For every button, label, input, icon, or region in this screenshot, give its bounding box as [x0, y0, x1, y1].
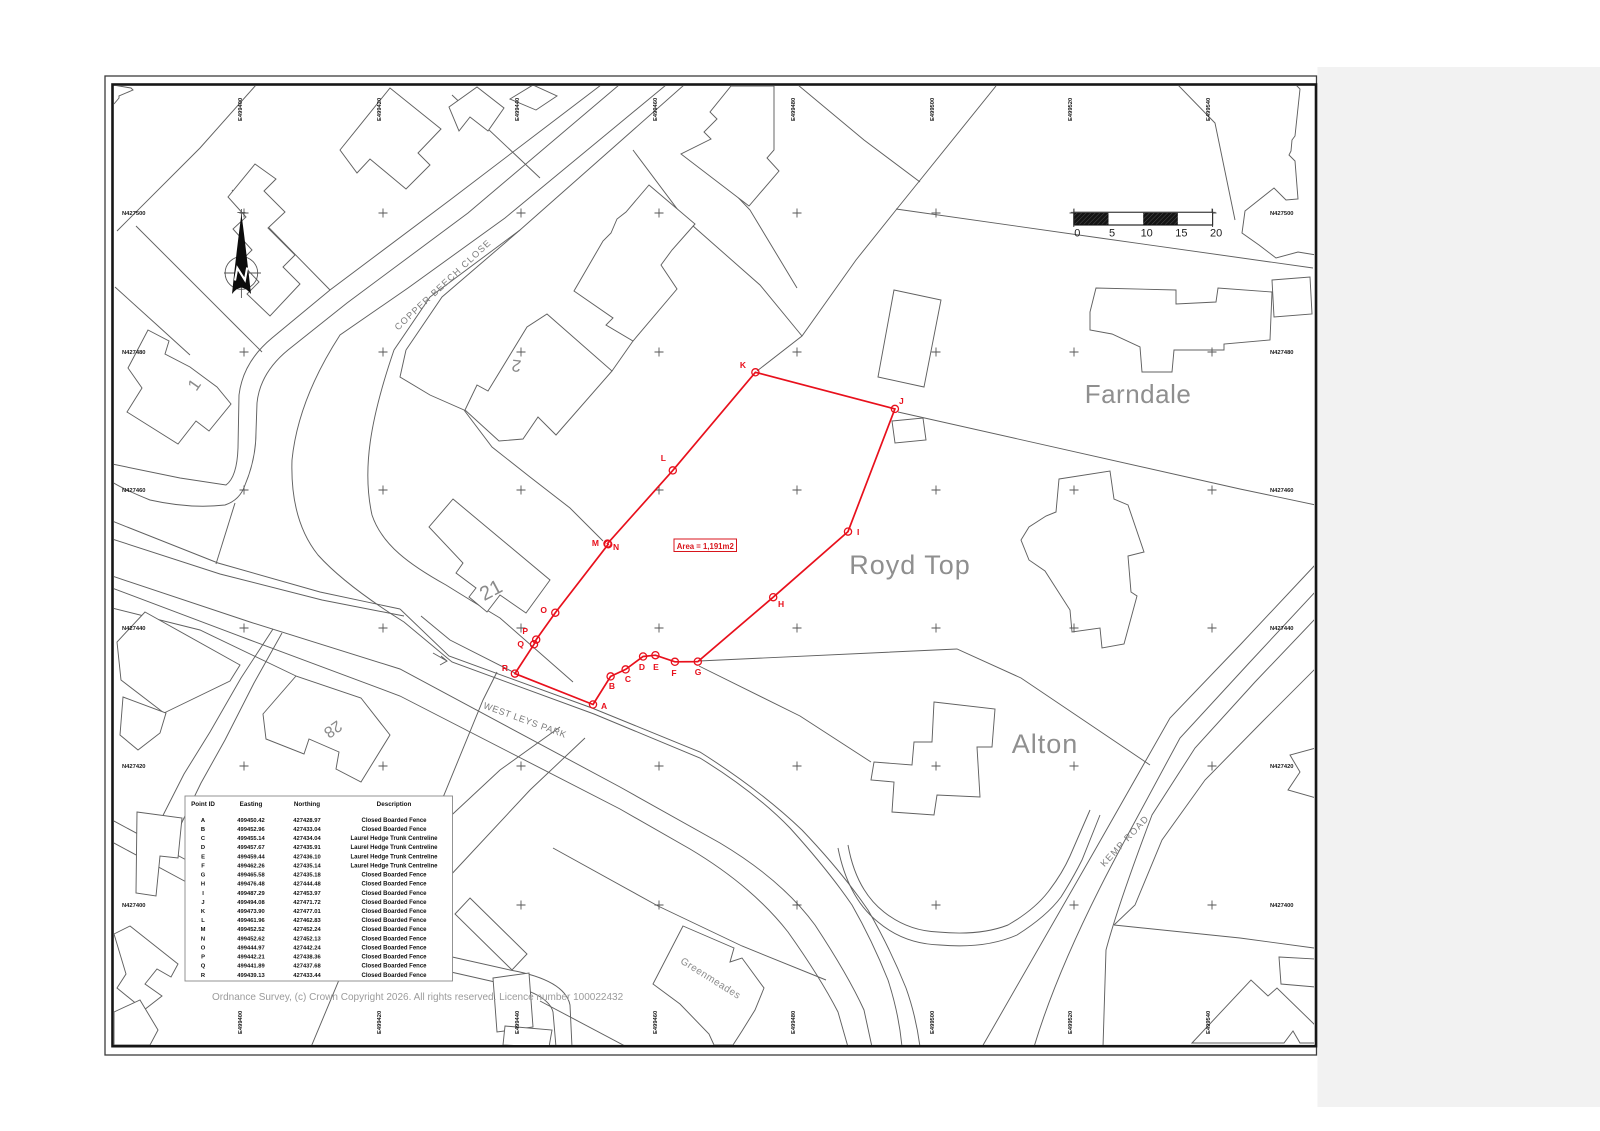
svg-text:A: A [601, 701, 607, 711]
svg-text:E499400: E499400 [238, 98, 244, 121]
svg-text:427433.44: 427433.44 [293, 973, 321, 979]
svg-text:N: N [613, 542, 619, 552]
svg-text:0: 0 [1074, 228, 1080, 240]
svg-text:Royd Top: Royd Top [849, 550, 971, 580]
svg-text:B: B [609, 681, 615, 691]
svg-text:Closed Boarded Fence: Closed Boarded Fence [361, 918, 427, 924]
svg-text:E499480: E499480 [791, 1011, 797, 1034]
svg-text:427428.97: 427428.97 [293, 818, 320, 824]
svg-text:E499520: E499520 [1068, 98, 1074, 121]
svg-text:J: J [899, 396, 904, 406]
svg-text:499459.44: 499459.44 [237, 854, 265, 860]
svg-text:499494.08: 499494.08 [237, 900, 265, 906]
svg-text:499457.67: 499457.67 [237, 845, 264, 851]
svg-text:499473.90: 499473.90 [237, 909, 264, 915]
svg-text:B: B [201, 827, 205, 833]
svg-text:E: E [653, 662, 659, 672]
svg-text:499452.52: 499452.52 [237, 927, 264, 933]
svg-text:E499440: E499440 [515, 1011, 521, 1034]
svg-text:E499520: E499520 [1068, 1011, 1074, 1034]
svg-text:427437.68: 427437.68 [293, 964, 321, 970]
svg-text:499442.21: 499442.21 [237, 955, 265, 961]
svg-text:I: I [857, 527, 859, 537]
svg-text:427453.97: 427453.97 [293, 891, 320, 897]
svg-text:499439.13: 499439.13 [237, 973, 265, 979]
svg-text:E499420: E499420 [377, 98, 383, 121]
svg-text:499487.29: 499487.29 [237, 891, 265, 897]
svg-text:499476.48: 499476.48 [237, 882, 265, 888]
svg-text:Laurel Hedge Trunk Centreline: Laurel Hedge Trunk Centreline [350, 845, 438, 851]
svg-text:D: D [639, 662, 645, 672]
svg-text:427434.04: 427434.04 [293, 836, 321, 842]
svg-text:427435.91: 427435.91 [293, 845, 321, 851]
svg-text:D: D [201, 845, 205, 851]
svg-text:M: M [201, 927, 206, 933]
svg-text:5: 5 [1109, 228, 1115, 240]
svg-text:P: P [201, 955, 205, 961]
svg-text:Area = 1,191m2: Area = 1,191m2 [677, 542, 735, 551]
svg-text:N: N [201, 936, 205, 942]
svg-text:Ordnance Survey, (c) Crown Cop: Ordnance Survey, (c) Crown Copyright 202… [212, 992, 624, 1003]
svg-text:Closed Boarded Fence: Closed Boarded Fence [361, 909, 427, 915]
svg-text:E499500: E499500 [930, 98, 936, 121]
svg-text:427462.83: 427462.83 [293, 918, 321, 924]
svg-text:Closed Boarded Fence: Closed Boarded Fence [361, 955, 427, 961]
svg-text:Closed Boarded Fence: Closed Boarded Fence [361, 891, 427, 897]
svg-text:499462.26: 499462.26 [237, 863, 265, 869]
svg-text:15: 15 [1175, 228, 1187, 240]
svg-text:N427500: N427500 [122, 211, 146, 217]
svg-text:N427460: N427460 [1270, 488, 1294, 494]
svg-text:N427400: N427400 [122, 903, 146, 909]
svg-text:Closed Boarded Fence: Closed Boarded Fence [361, 827, 427, 833]
svg-text:499465.58: 499465.58 [237, 873, 265, 879]
svg-text:427436.10: 427436.10 [293, 854, 320, 860]
svg-text:F: F [671, 668, 676, 678]
svg-text:N427440: N427440 [1270, 626, 1294, 632]
svg-text:P: P [522, 626, 528, 636]
svg-text:N427420: N427420 [1270, 764, 1294, 770]
svg-text:427438.36: 427438.36 [293, 955, 321, 961]
svg-text:O: O [201, 945, 206, 951]
svg-text:E499420: E499420 [377, 1011, 383, 1034]
svg-text:10: 10 [1141, 228, 1153, 240]
svg-text:Easting: Easting [240, 801, 263, 808]
svg-text:Closed Boarded Fence: Closed Boarded Fence [361, 873, 427, 879]
svg-text:E499460: E499460 [653, 1011, 659, 1034]
svg-text:H: H [778, 599, 784, 609]
svg-text:Closed Boarded Fence: Closed Boarded Fence [361, 900, 427, 906]
svg-text:O: O [540, 605, 547, 615]
svg-text:Closed Boarded Fence: Closed Boarded Fence [361, 936, 427, 942]
svg-text:M: M [592, 538, 599, 548]
svg-text:E499440: E499440 [515, 98, 521, 121]
svg-text:427452.24: 427452.24 [293, 927, 321, 933]
svg-text:L: L [661, 453, 666, 463]
svg-text:Closed Boarded Fence: Closed Boarded Fence [361, 882, 427, 888]
svg-text:Laurel Hedge Trunk Centreline: Laurel Hedge Trunk Centreline [350, 854, 438, 860]
svg-text:H: H [201, 882, 205, 888]
svg-text:Alton: Alton [1012, 729, 1079, 759]
svg-text:499452.96: 499452.96 [237, 827, 265, 833]
svg-text:427444.48: 427444.48 [293, 882, 321, 888]
svg-text:N427420: N427420 [122, 764, 146, 770]
svg-text:Q: Q [201, 964, 206, 970]
svg-text:N427480: N427480 [1270, 350, 1294, 356]
svg-text:Point ID: Point ID [191, 801, 215, 808]
svg-text:N427440: N427440 [122, 626, 146, 632]
svg-text:E499540: E499540 [1206, 98, 1212, 121]
svg-text:N427460: N427460 [122, 488, 146, 494]
svg-text:499450.42: 499450.42 [237, 818, 264, 824]
svg-text:E499540: E499540 [1206, 1011, 1212, 1034]
svg-text:J: J [201, 900, 204, 906]
svg-text:Closed Boarded Fence: Closed Boarded Fence [361, 945, 427, 951]
svg-text:R: R [502, 663, 508, 673]
svg-text:C: C [625, 674, 631, 684]
svg-text:Closed Boarded Fence: Closed Boarded Fence [361, 927, 427, 933]
svg-text:499452.62: 499452.62 [237, 936, 264, 942]
svg-text:L: L [201, 918, 205, 924]
svg-text:Q: Q [517, 639, 524, 649]
svg-text:427471.72: 427471.72 [293, 900, 320, 906]
svg-text:Farndale: Farndale [1085, 379, 1192, 409]
svg-text:N427480: N427480 [122, 350, 146, 356]
svg-text:427442.24: 427442.24 [293, 945, 321, 951]
svg-text:Laurel Hedge Trunk Centreline: Laurel Hedge Trunk Centreline [350, 863, 438, 869]
svg-text:427435.18: 427435.18 [293, 873, 321, 879]
svg-text:K: K [740, 360, 747, 370]
svg-text:499444.97: 499444.97 [237, 945, 264, 951]
svg-text:Northing: Northing [294, 801, 320, 808]
svg-text:G: G [201, 873, 206, 879]
svg-text:Closed Boarded Fence: Closed Boarded Fence [361, 973, 427, 979]
svg-text:Closed Boarded Fence: Closed Boarded Fence [361, 964, 427, 970]
svg-text:N427400: N427400 [1270, 903, 1294, 909]
svg-text:499441.89: 499441.89 [237, 964, 265, 970]
svg-text:Description: Description [377, 801, 412, 808]
svg-text:Laurel Hedge Trunk Centreline: Laurel Hedge Trunk Centreline [350, 836, 438, 842]
svg-text:427477.01: 427477.01 [293, 909, 321, 915]
svg-text:E499500: E499500 [930, 1011, 936, 1034]
svg-text:E: E [201, 854, 205, 860]
svg-text:Closed Boarded Fence: Closed Boarded Fence [361, 818, 427, 824]
svg-text:F: F [201, 863, 205, 869]
svg-text:N427500: N427500 [1270, 211, 1294, 217]
svg-text:E499400: E499400 [238, 1011, 244, 1034]
svg-text:427435.14: 427435.14 [293, 863, 321, 869]
svg-text:427452.13: 427452.13 [293, 936, 321, 942]
svg-text:E499460: E499460 [653, 98, 659, 121]
svg-text:427433.04: 427433.04 [293, 827, 321, 833]
svg-text:499455.14: 499455.14 [237, 836, 265, 842]
svg-text:E499480: E499480 [791, 98, 797, 121]
svg-text:499461.96: 499461.96 [237, 918, 265, 924]
svg-text:20: 20 [1210, 228, 1222, 240]
svg-text:G: G [695, 667, 702, 677]
